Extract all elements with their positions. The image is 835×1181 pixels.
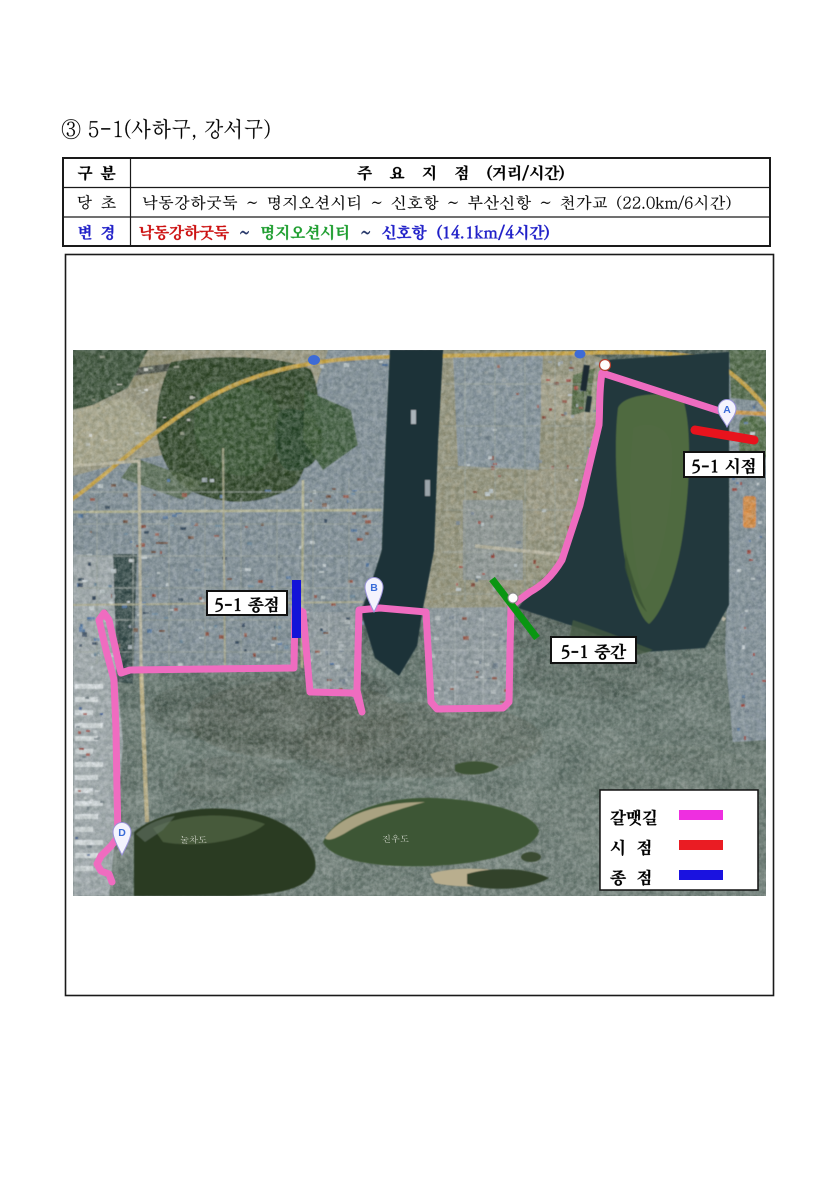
svg-text:B: B xyxy=(370,582,378,594)
svg-text:D: D xyxy=(118,827,126,839)
svg-text:A: A xyxy=(723,404,731,416)
